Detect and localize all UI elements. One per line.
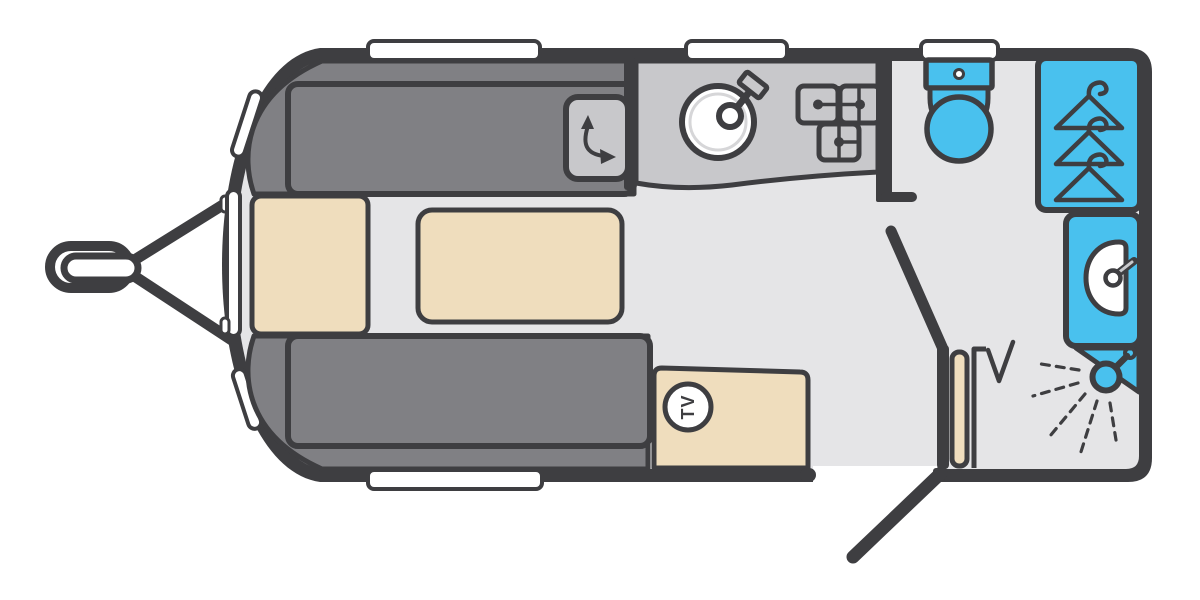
- washroom-door-panel: [952, 352, 967, 466]
- wardrobe: [1038, 58, 1140, 210]
- lounge-sofa-bottom: [248, 336, 650, 469]
- window-top-left: [368, 41, 540, 60]
- burner-3-dot: [834, 137, 844, 147]
- doorway-gap: [813, 466, 937, 488]
- doorway-jamb-left: [800, 468, 816, 482]
- floorplan-canvas: TV: [0, 0, 1200, 600]
- toilet-flush-button: [955, 70, 964, 79]
- hitch-coupler-inner: [64, 256, 138, 280]
- entrance-doorway: [800, 466, 945, 557]
- partition-post: [937, 345, 949, 469]
- sofa-bottom-cushion: [288, 336, 650, 446]
- window-top-washroom: [921, 41, 998, 60]
- swivel-unit-body: [566, 97, 628, 179]
- caravan-floorplan: TV: [0, 0, 1200, 600]
- toilet-icon: [926, 60, 992, 161]
- toilet-bowl: [927, 97, 991, 161]
- front-chest: [252, 196, 368, 334]
- tv-label: TV: [678, 394, 698, 419]
- tap-base: [719, 105, 741, 127]
- partition-wall-vertical: [876, 58, 892, 202]
- basin-tap-base: [1106, 271, 1121, 286]
- tv-cabinet: TV: [654, 368, 808, 468]
- washbasin-unit: [1066, 214, 1140, 346]
- window-front-middle: [227, 190, 240, 336]
- shower-head: [1093, 364, 1120, 391]
- swivel-unit: [566, 97, 628, 179]
- window-bottom: [368, 470, 542, 489]
- burner-1-dot: [813, 100, 823, 110]
- kitchen-area: [636, 61, 880, 188]
- burner-2-dot: [855, 100, 865, 110]
- window-top-kitchen: [686, 41, 787, 60]
- window-front-tab-lower: [221, 318, 229, 334]
- table: [418, 210, 622, 322]
